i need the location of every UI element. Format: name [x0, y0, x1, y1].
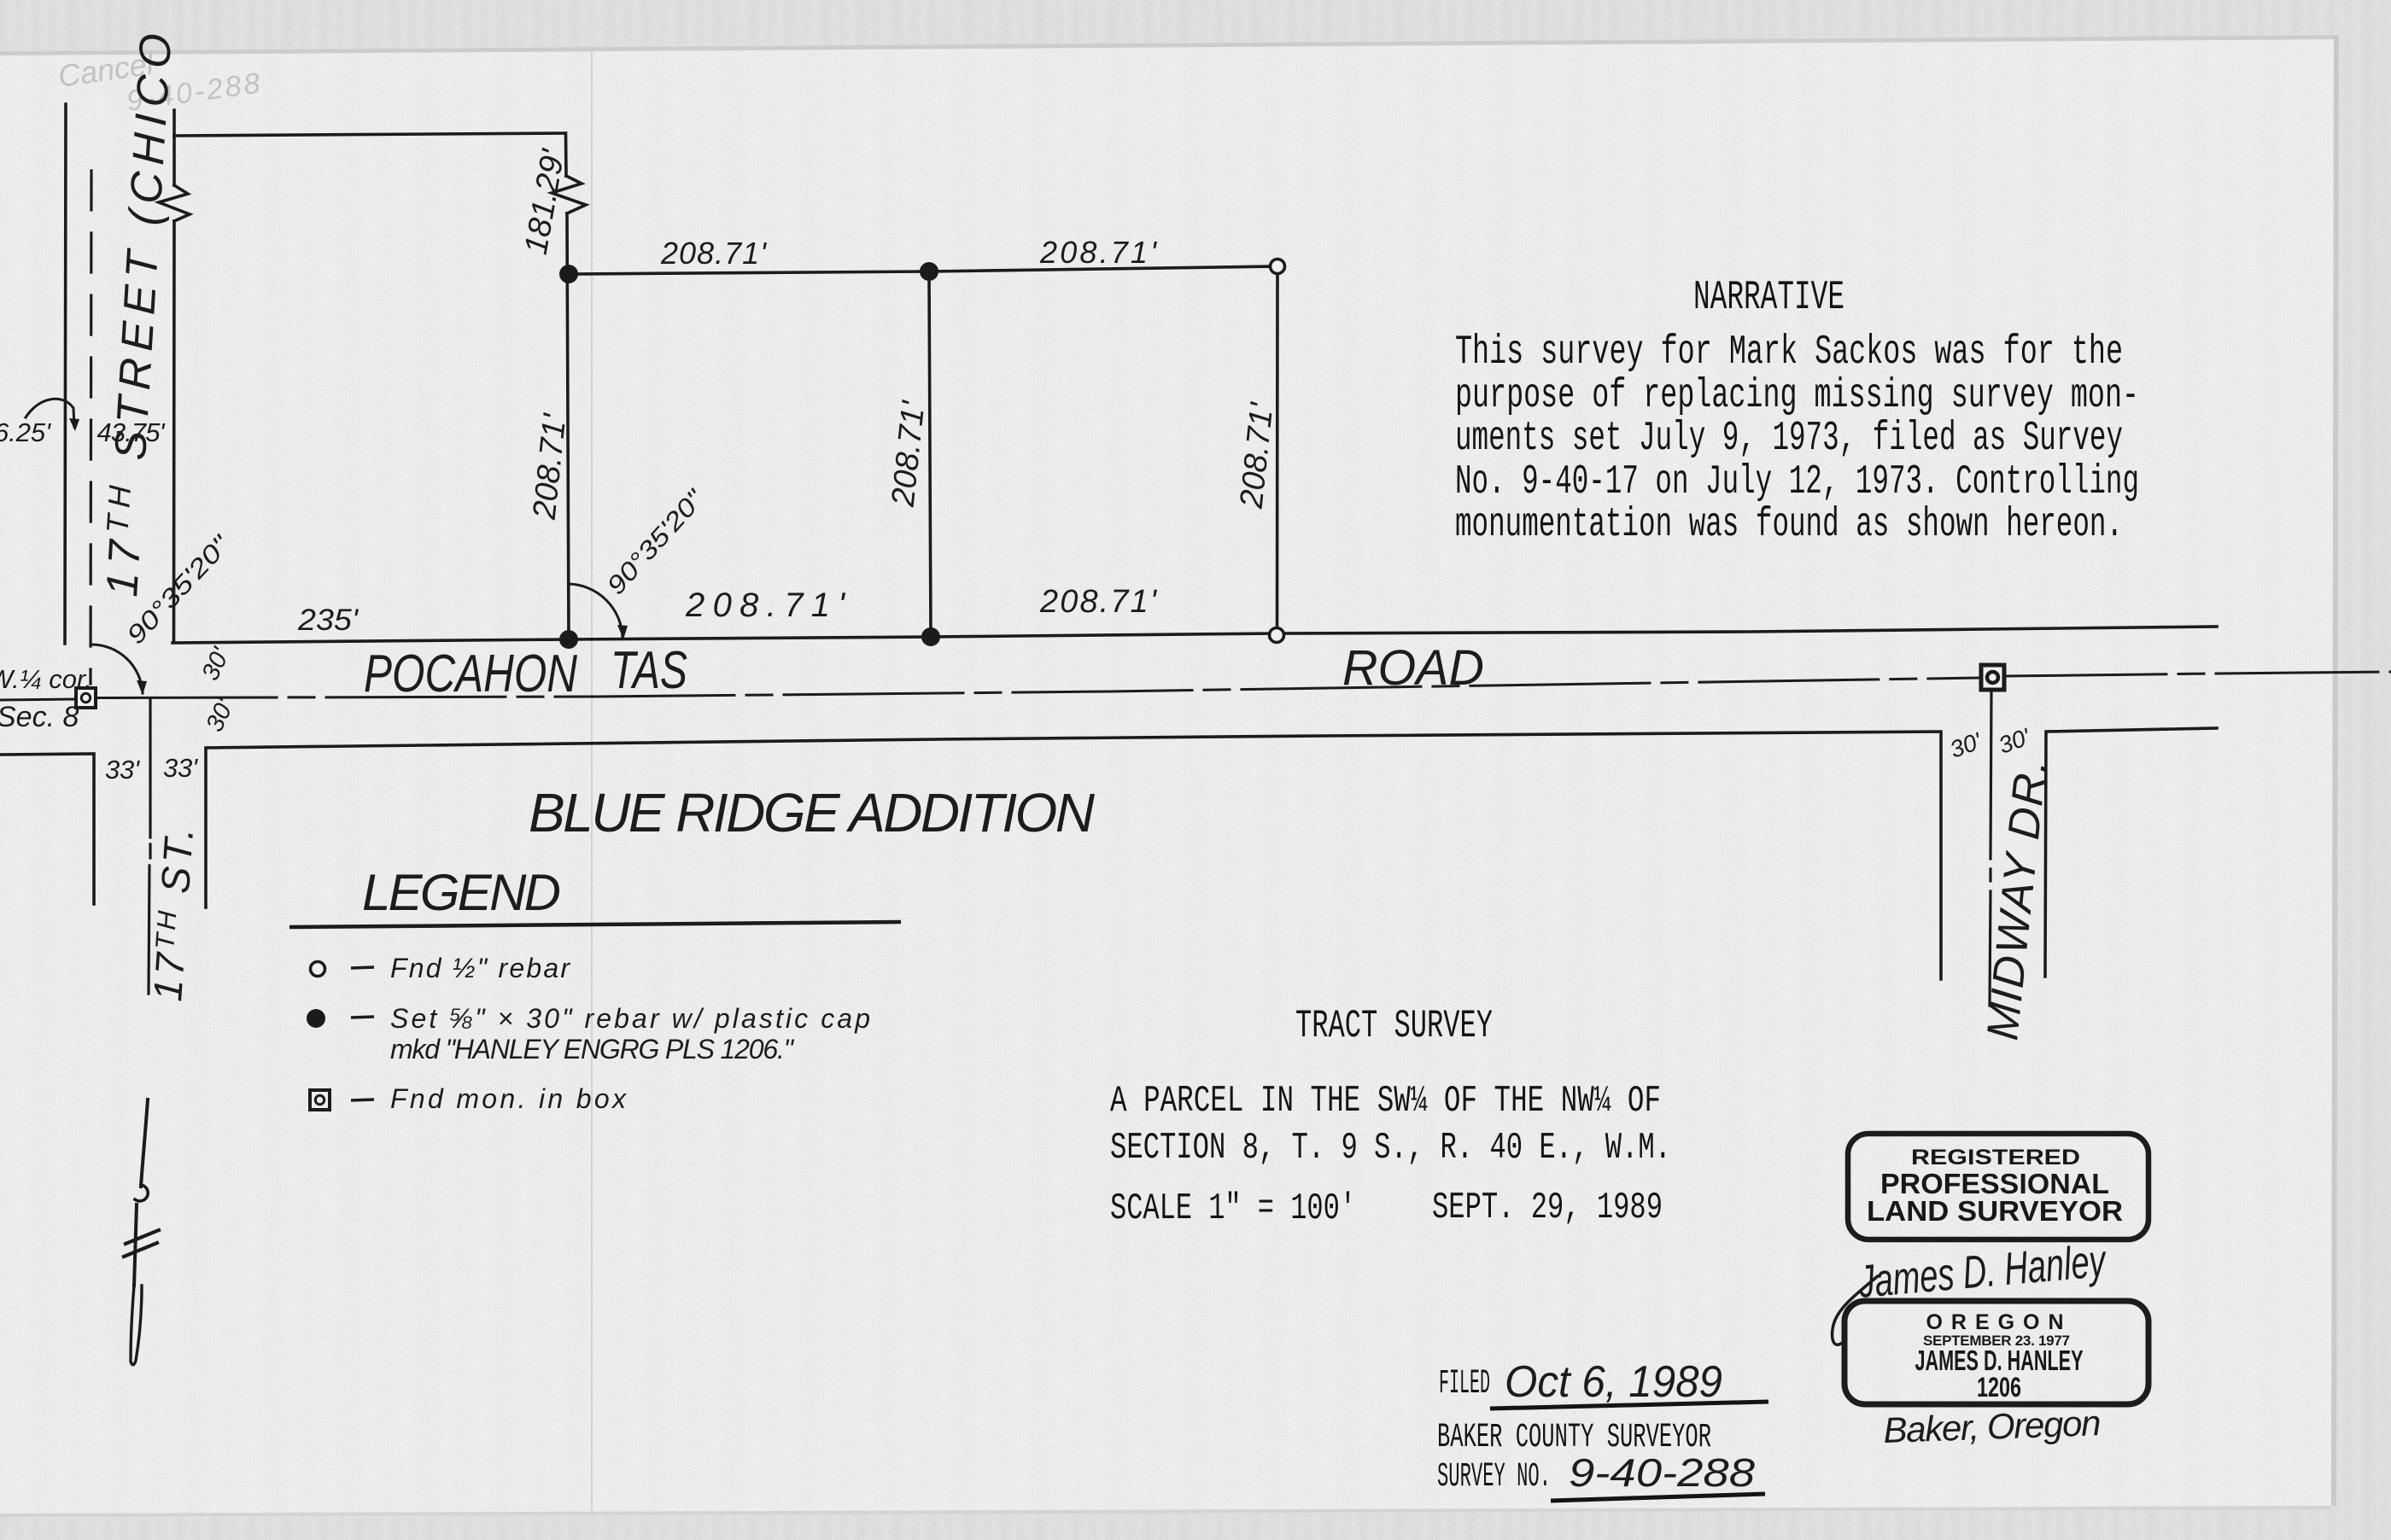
svg-text:6.25': 6.25' [0, 417, 51, 447]
svg-text:TAS: TAS [611, 641, 687, 700]
svg-text:mkd "HANLEY ENGRG PLS 1206.": mkd "HANLEY ENGRG PLS 1206." [390, 1034, 795, 1065]
svg-text:SURVEY NO.: SURVEY NO. [1437, 1458, 1551, 1496]
svg-text:W.¼ cor.: W.¼ cor. [0, 664, 92, 694]
svg-text:BLUE RIDGE ADDITION: BLUE RIDGE ADDITION [529, 782, 1099, 843]
svg-text:No. 9-40-17 on July 12, 1973.: No. 9-40-17 on July 12, 1973. Controllin… [1455, 459, 2139, 505]
svg-text:ROAD: ROAD [1342, 640, 1484, 696]
svg-text:NARRATIVE: NARRATIVE [1693, 275, 1844, 321]
svg-text:SCALE 1" = 100': SCALE 1" = 100' [1110, 1187, 1356, 1230]
svg-text:POCAHON: POCAHON [364, 645, 577, 703]
svg-text:9-40-288: 9-40-288 [1569, 1450, 1755, 1495]
svg-text:Oct 6, 1989: Oct 6, 1989 [1505, 1357, 1722, 1407]
svg-text:uments set July 9, 1973, filed: uments set July 9, 1973, filed as Survey [1455, 416, 2123, 462]
svg-text:FILED: FILED [1439, 1365, 1490, 1403]
svg-text:LAND SURVEYOR: LAND SURVEYOR [1867, 1195, 2123, 1227]
svg-text:33': 33' [105, 755, 140, 785]
svg-text:SEPT. 29, 1989: SEPT. 29, 1989 [1432, 1187, 1663, 1229]
svg-text:TRACT SURVEY: TRACT SURVEY [1295, 1004, 1493, 1048]
svg-text:43.75': 43.75' [97, 417, 166, 447]
svg-text:235': 235' [297, 604, 359, 637]
svg-text:Sec. 8: Sec. 8 [0, 701, 79, 733]
svg-text:purpose of replacing missing s: purpose of replacing missing survey mon- [1455, 373, 2139, 419]
svg-text:A PARCEL IN THE SW¼ OF THE NW¼: A PARCEL IN THE SW¼ OF THE NW¼ OF [1110, 1080, 1661, 1123]
svg-text:33': 33' [163, 753, 198, 783]
svg-text:1206: 1206 [1977, 1372, 2021, 1403]
svg-text:208.71': 208.71' [660, 236, 767, 271]
svg-text:This survey for Mark Sackos wa: This survey for Mark Sackos was for the [1455, 330, 2123, 376]
svg-text:Baker, Oregon: Baker, Oregon [1883, 1403, 2102, 1450]
svg-text:SECTION 8, T. 9 S., R. 40 E.,: SECTION 8, T. 9 S., R. 40 E., W.M. [1110, 1127, 1671, 1170]
svg-text:LEGEND: LEGEND [362, 864, 561, 921]
svg-text:monumentation was found as sho: monumentation was found as shown hereon. [1455, 502, 2123, 548]
svg-text:REGISTERED: REGISTERED [1911, 1146, 2080, 1170]
svg-text:Fnd ½" rebar: Fnd ½" rebar [390, 953, 570, 983]
